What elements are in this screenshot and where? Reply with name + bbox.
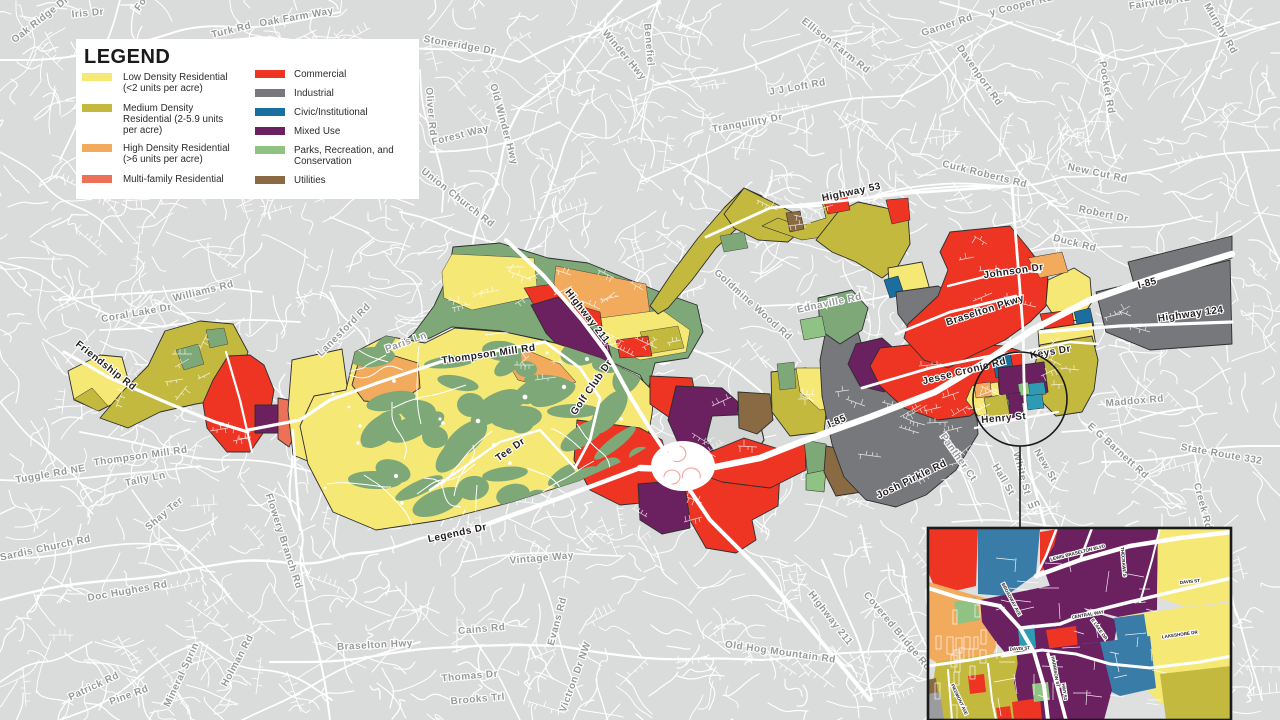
- svg-text:Parks, Recreation, and: Parks, Recreation, and: [294, 145, 394, 156]
- svg-text:(>6 units per acre): (>6 units per acre): [123, 154, 203, 165]
- svg-text:Civic/Institutional: Civic/Institutional: [294, 107, 368, 118]
- svg-text:Residential (2-5.9 units: Residential (2-5.9 units: [123, 114, 223, 125]
- svg-text:LEGEND: LEGEND: [84, 46, 170, 68]
- svg-text:per acre): per acre): [123, 125, 162, 136]
- svg-text:Industrial: Industrial: [294, 88, 334, 99]
- svg-text:Commercial: Commercial: [294, 69, 346, 80]
- svg-text:Mixed Use: Mixed Use: [294, 126, 341, 137]
- svg-text:Low Density Residential: Low Density Residential: [123, 72, 228, 83]
- svg-text:Conservation: Conservation: [294, 156, 352, 167]
- svg-text:Utilities: Utilities: [294, 175, 326, 186]
- svg-text:Medium Density: Medium Density: [123, 103, 193, 114]
- svg-text:Multi-family Residential: Multi-family Residential: [123, 174, 224, 185]
- svg-text:(<2 units per acre): (<2 units per acre): [123, 83, 203, 94]
- svg-text:High Density Residential: High Density Residential: [123, 143, 230, 154]
